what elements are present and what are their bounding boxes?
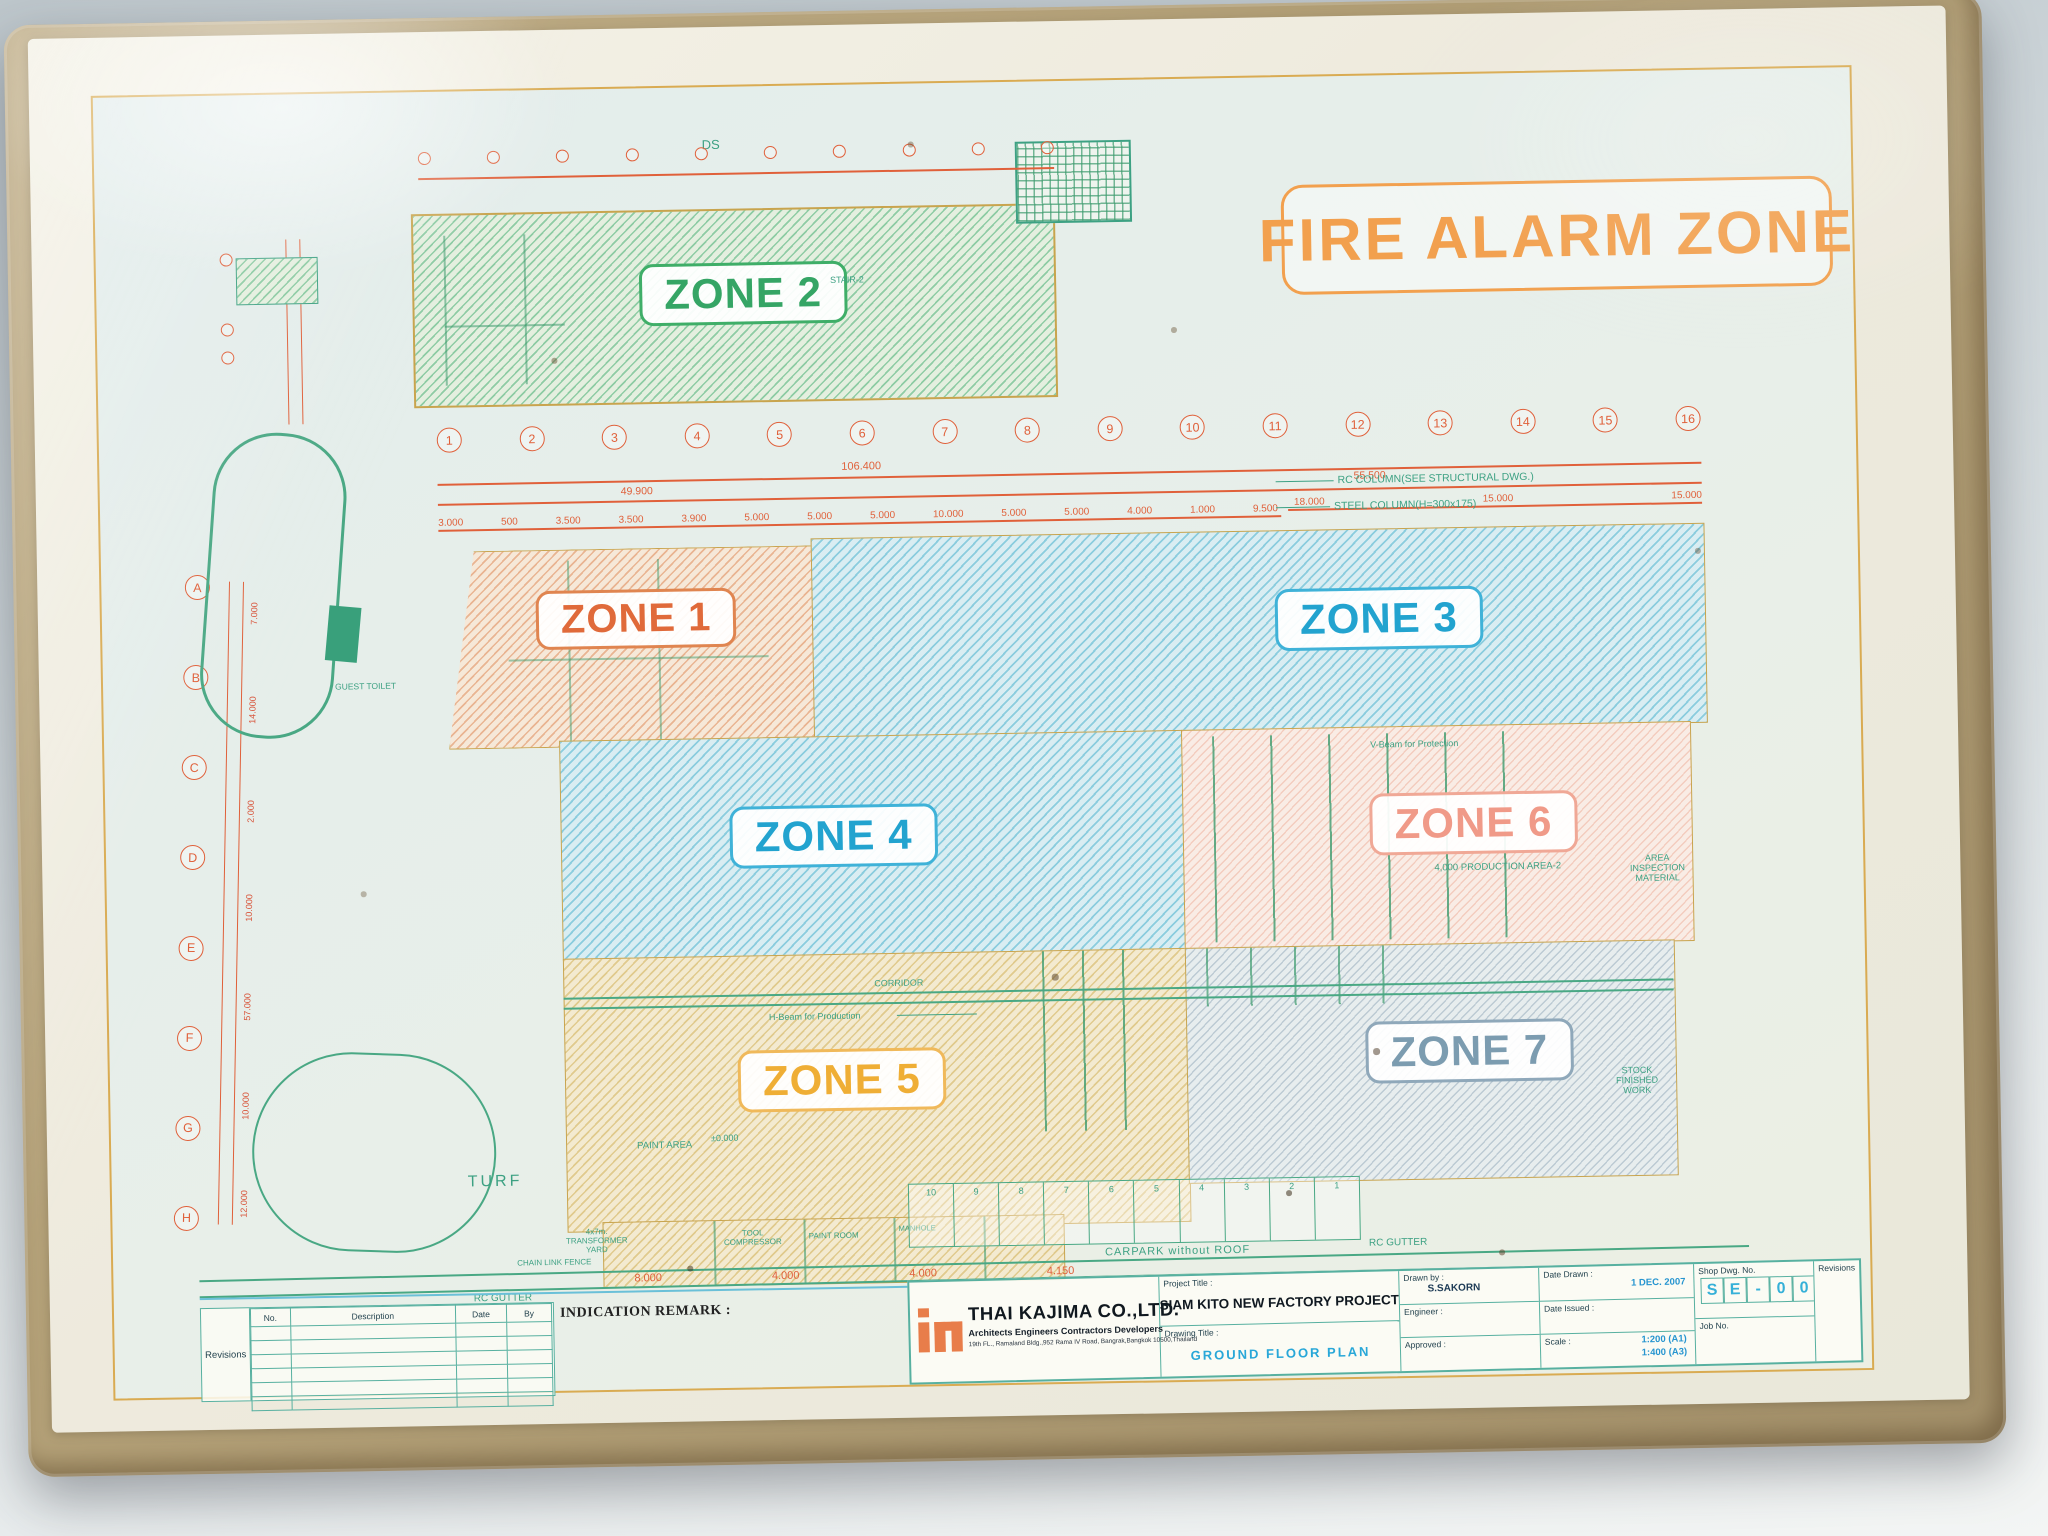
photo-of-fire-alarm-plan: { "banner": { "title": "FIRE ALARM ZONE"…: [0, 0, 2048, 1536]
zone-1-label: ZONE 1: [535, 588, 736, 650]
toilet-block: [325, 605, 362, 663]
grid-column-circle: 12: [1345, 412, 1370, 437]
dim-value: 4.000: [772, 1270, 800, 1282]
zone-3-area: ZONE 3: [811, 523, 1708, 739]
carpark-stalls: 10987654321: [908, 1176, 1361, 1248]
paper-specks: [28, 39, 30, 41]
carpark-stall: 5: [1134, 1180, 1180, 1243]
dim-value: 12.000: [239, 1191, 249, 1219]
left-span-dim-label: 49.900: [621, 485, 653, 498]
shop-dwg-digit: -: [1746, 1276, 1770, 1303]
carpark-stall: 10: [909, 1184, 955, 1247]
carpark-stall: 8: [999, 1182, 1045, 1245]
grid-column-circle: 3: [602, 425, 627, 450]
zone1-partition: [509, 655, 769, 661]
zone1-partition: [657, 559, 662, 739]
chain-link-fence-label: CHAIN LINK FENCE: [517, 1257, 591, 1267]
dim-value: 4.000: [909, 1267, 937, 1279]
dim-value: 500: [501, 516, 518, 527]
paint-room-label: PAINT ROOM: [809, 1231, 859, 1241]
col-no: No.: [250, 1308, 290, 1327]
dim-value: 3.900: [681, 513, 706, 524]
grid-row-circle: G: [175, 1116, 200, 1141]
production-area-label: 4,000 PRODUCTION AREA-2: [1434, 860, 1561, 873]
paint-area-label: PAINT AREA: [637, 1140, 692, 1152]
grid-column-circle: 9: [1097, 416, 1122, 441]
grid-column-circle: 16: [1675, 406, 1700, 431]
zone-7-area: ZONE 7: [1185, 939, 1679, 1184]
v-beam-label: V-Beam for Protection: [1370, 738, 1458, 750]
grid-tick-circle: [556, 150, 569, 163]
zone-6-area: ZONE 6: [1181, 721, 1695, 950]
dim-value: 10.000: [244, 894, 254, 922]
grid-tick-circle: [971, 142, 984, 155]
shop-dwg-number: SE-00: [1700, 1275, 1814, 1304]
grid-column-circle: 7: [932, 419, 957, 444]
engineer-label: Engineer :: [1404, 1306, 1443, 1317]
turf-label: TURF: [468, 1172, 523, 1191]
grid-row-circle: C: [182, 755, 207, 780]
thai-kajima-logo: [918, 1307, 965, 1352]
grid-tick-circle: [902, 143, 915, 156]
carpark-stall: 2: [1270, 1178, 1316, 1241]
drawing-title-label: Drawing Title :: [1164, 1327, 1218, 1338]
shop-dwg-digit: 0: [1792, 1275, 1814, 1302]
carpark-stall: 6: [1089, 1181, 1135, 1244]
carpark-stall: 4: [1179, 1179, 1225, 1242]
revision-section-label: Revisions: [201, 1308, 252, 1401]
stock-finished-label: STOCK FINISHED WORK: [1602, 1064, 1673, 1095]
dim-value: 9.500: [1253, 503, 1278, 514]
grid-column-circle: 5: [767, 422, 792, 447]
revisions-cell: Revisions: [1814, 1260, 1861, 1361]
grid-column-circle: 14: [1510, 409, 1535, 434]
grid-row-circle: F: [177, 1025, 202, 1050]
stair2-label: STAIR-2: [830, 274, 864, 285]
zone-2-label: ZONE 2: [639, 261, 848, 327]
scale-label: Scale :: [1545, 1336, 1571, 1347]
zone-6-label: ZONE 6: [1369, 790, 1578, 856]
company-name: THAI KAJIMA CO.,LTD.: [968, 1299, 1156, 1325]
grid-tick-circle: [1041, 141, 1054, 154]
guest-toilet-label: GUEST TOILET: [335, 681, 396, 692]
company-tagline: Architects Engineers Contractors Develop…: [968, 1324, 1156, 1338]
dwg-no-cell: Shop Dwg. No. SE-00 Job No.: [1694, 1261, 1816, 1364]
grid-column-circle: 8: [1015, 417, 1040, 442]
grid-column-circle: 2: [519, 426, 544, 451]
steel-column-note: STEEL COLUMN(H=300x175): [1334, 498, 1476, 512]
drawn-by-value: S.SAKORN: [1427, 1282, 1480, 1294]
zone-5-label: ZONE 5: [737, 1047, 946, 1113]
dates-cell: Date Drawn : 1 DEC. 2007 Date Issued : S…: [1539, 1264, 1696, 1368]
grid-tick-circle: [833, 145, 846, 158]
inspection-area-label: AREA INSPECTION MATERIAL: [1622, 852, 1693, 883]
shop-dwg-label: Shop Dwg. No.: [1698, 1265, 1755, 1276]
carpark-stall: 9: [954, 1183, 1000, 1246]
shop-dwg-digit: 0: [1769, 1276, 1793, 1303]
grid-column-circle: 10: [1180, 414, 1205, 439]
carpark-stall: 1: [1315, 1177, 1360, 1240]
date-issued-label: Date Issued :: [1544, 1303, 1594, 1314]
dim-value: 3.500: [618, 514, 643, 525]
h-beam-label: H-Beam for Production: [769, 1011, 861, 1023]
revision-table: Revisions No. Description Date By: [200, 1302, 556, 1402]
fire-alarm-zone-banner: FIRE ALARM ZONE: [1280, 175, 1833, 295]
grid-tick-circle: [764, 146, 777, 159]
grid-row-circle: H: [174, 1206, 199, 1231]
grid-tick-circle: [695, 147, 708, 160]
dim-value: 15.000: [1483, 493, 1514, 505]
dim-value: 5.000: [870, 510, 895, 521]
dim-value: 2.000: [246, 795, 256, 823]
grid-tick-circle: [625, 148, 638, 161]
dim-value: 3.000: [438, 517, 463, 528]
zone-3-label: ZONE 3: [1275, 586, 1484, 652]
approved-label: Approved :: [1405, 1339, 1446, 1350]
level-label: ±0.000: [711, 1133, 739, 1143]
grid-column-circle: 1: [437, 427, 462, 452]
people-cell: Drawn by : S.SAKORN Engineer : Approved …: [1399, 1268, 1541, 1371]
turf-island-outline: [249, 1049, 500, 1256]
grid-tick-circle: [418, 152, 431, 165]
overall-dim-label: 106.400: [841, 460, 881, 473]
grid-row-circle: D: [180, 845, 205, 870]
zone2-partition: [445, 324, 565, 328]
tool-compressor-label: TOOL COMPRESSOR: [721, 1228, 785, 1247]
zone-4-area: ZONE 4: [559, 730, 1187, 961]
grid-column-circle: 11: [1262, 413, 1287, 438]
grid-row-circle: E: [178, 935, 203, 960]
dim-value: 57.000: [242, 993, 252, 1021]
dim-value: 10.000: [240, 1092, 250, 1120]
zone-2-area: ZONE 2: [411, 203, 1058, 408]
indication-remark-label: INDICATION REMARK :: [560, 1303, 731, 1322]
zone-4-label: ZONE 4: [729, 803, 938, 869]
dim-value: 8.000: [634, 1272, 662, 1284]
drawn-by-label: Drawn by :: [1403, 1272, 1444, 1283]
dim-value: 15.000: [1671, 490, 1702, 502]
job-no-label: Job No.: [1699, 1320, 1729, 1331]
dim-value: 5.000: [1064, 506, 1089, 517]
dim-value: 5.000: [807, 511, 832, 522]
revision-grid: No. Description Date By: [250, 1303, 554, 1411]
zone2-partition: [523, 234, 527, 384]
company-cell: THAI KAJIMA CO.,LTD. Architects Engineer…: [909, 1277, 1161, 1383]
grid-tick-circle: [487, 151, 500, 164]
zone1-partition: [567, 561, 572, 741]
grid-column-circle: 13: [1428, 410, 1453, 435]
zone-7-label: ZONE 7: [1365, 1018, 1574, 1084]
company-address: 19th FL., Ramaland Bldg.,952 Rama IV Roa…: [969, 1337, 1157, 1348]
carpark-stall: 3: [1224, 1178, 1270, 1241]
grid-column-circle: 4: [684, 423, 709, 448]
zone-1-area: ZONE 1: [446, 545, 816, 749]
transformer-yard-label: 4x7m. TRANSFORMER YARD: [557, 1227, 637, 1255]
col-date: Date: [455, 1304, 506, 1323]
col-by: By: [506, 1304, 551, 1323]
plastic-sleeve: FIRE ALARM ZONE ZONE 2 DS STAIR-2: [3, 0, 2006, 1477]
dim-value: 3.500: [556, 515, 581, 526]
grid-column-circle: 6: [849, 420, 874, 445]
dim-value: 10.000: [933, 509, 964, 521]
scale-a3-value: 1:400 (A3): [1642, 1346, 1688, 1358]
shop-dwg-digit: S: [1700, 1277, 1724, 1304]
ramp-area: [236, 257, 319, 305]
revisions-label: Revisions: [1818, 1262, 1855, 1273]
dim-value: 5.000: [1001, 508, 1026, 519]
company-info: THAI KAJIMA CO.,LTD. Architects Engineer…: [968, 1299, 1157, 1348]
dim-value: 4.000: [1127, 505, 1152, 516]
project-title-label: Project Title :: [1163, 1278, 1212, 1289]
rc-gutter-right-label: RC GUTTER: [1369, 1237, 1428, 1249]
grid-column-circle: 15: [1593, 407, 1618, 432]
pond-outline: [196, 428, 351, 743]
corridor-label: CORRIDOR: [874, 977, 923, 988]
titles-cell: Project Title : SIAM KITO NEW FACTORY PR…: [1159, 1271, 1401, 1377]
scale-a1-value: 1:200 (A1): [1641, 1333, 1687, 1345]
date-drawn-label: Date Drawn :: [1543, 1269, 1593, 1280]
carpark-stall: 7: [1044, 1182, 1090, 1245]
dim-value: 1.000: [1190, 504, 1215, 515]
shop-dwg-digit: E: [1723, 1277, 1747, 1304]
paper-sheet: FIRE ALARM ZONE ZONE 2 DS STAIR-2: [28, 5, 1970, 1432]
zone5-column-lines: [1042, 949, 1155, 1131]
zone2-partition: [443, 236, 447, 386]
date-drawn-value: 1 DEC. 2007: [1631, 1276, 1686, 1288]
dim-value: 5.000: [744, 512, 769, 523]
